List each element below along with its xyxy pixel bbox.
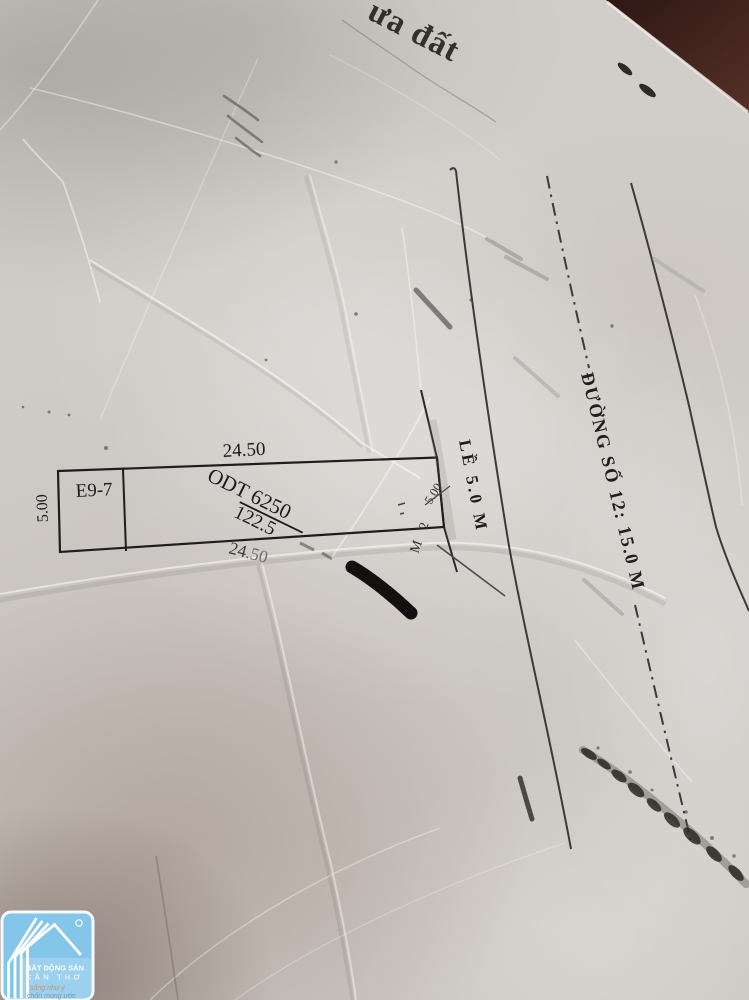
svg-text:CẦN THƠ: CẦN THƠ	[26, 972, 83, 982]
svg-text:5.00: 5.00	[34, 494, 52, 523]
svg-text:E9-7: E9-7	[75, 479, 113, 502]
svg-text:24.50: 24.50	[227, 538, 270, 568]
svg-text:LỀ 5.0 M: LỀ 5.0 M	[455, 438, 492, 534]
svg-text:ưa đất: ưa đất	[362, 0, 465, 69]
svg-text:sống như ý: sống như ý	[30, 984, 65, 992]
svg-text:24.50: 24.50	[222, 439, 266, 462]
svg-text:ĐƯỜNG SỐ 12: 15.0 M: ĐƯỜNG SỐ 12: 15.0 M	[576, 370, 650, 593]
svg-text:M: M	[408, 538, 427, 555]
svg-text:chốn mong ước: chốn mong ước	[27, 992, 76, 1000]
svg-text:BẤT ĐỘNG SẢN: BẤT ĐỘNG SẢN	[26, 963, 84, 973]
